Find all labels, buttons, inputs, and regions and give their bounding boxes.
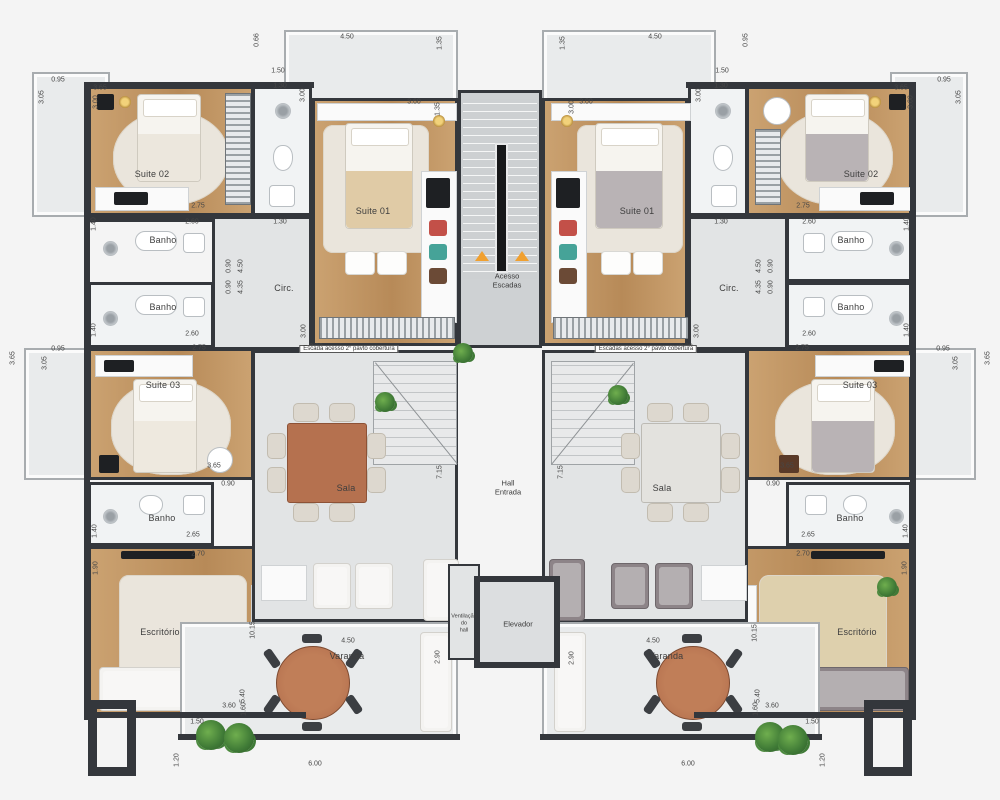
vent-label: Ventilação do hall [451,614,476,635]
room-sala-right [542,350,748,622]
coffee-table [261,565,307,601]
dimension-label: 4.50 [341,638,355,645]
bathroom-a-right [786,216,912,282]
dimension-label: 2.75 [796,203,810,210]
dimension-label: 2.90 [569,651,576,665]
room-label: Banho [837,235,864,245]
monitor-icon [114,192,148,205]
pouf [345,251,375,275]
armchair [611,563,649,609]
stairs-up-arrow-icon [475,251,489,261]
lamp-icon [119,96,131,108]
dimension-label: 3.00 [300,88,307,102]
plant-icon [877,577,897,597]
dimension-label: 0.95 [937,77,951,84]
stair-note-label: Escadas acesso 2° pavto cobertura [595,345,697,353]
dimension-label: 6.00 [681,761,695,768]
room-label: Suite 02 [135,169,170,179]
desk [95,355,193,377]
plant-icon [778,725,808,755]
dimension-label: 4.50 [756,259,763,273]
dimension-label: 1.20 [820,753,827,767]
stair-note-label: Escada acesso 2° pavto cobertura [299,345,398,353]
stairs-access-label: Acesso Escadas [493,272,522,291]
dimension-label: 0.90 [221,481,235,488]
plant-icon [453,343,473,363]
hall-entrada-label: Hall Entrada [495,479,521,498]
dimension-label: 3.60 [407,99,421,106]
dimension-label: 6.00 [308,761,322,768]
dimension-label: 1.40 [903,524,910,538]
dimension-label: 1.35 [437,36,444,50]
room-label: Banho [836,513,863,523]
room-label: Varanda [330,651,365,661]
stool-red [429,220,447,236]
dimension-label: 3.65 [207,463,221,470]
dimension-label: 1.35 [560,36,567,50]
room-label: Escritório [140,627,180,637]
dimension-label: 4.50 [238,259,245,273]
dimension-label: 2.75 [192,345,206,352]
stool-teal [429,244,447,260]
cooktop-icon [426,178,450,208]
room-label: Suite 02 [844,169,879,179]
floor-plan: Acesso Escadas Hall Entrada Ventilação d… [0,0,1000,800]
dimension-label: 3.00 [908,95,915,109]
dimension-label: 0.95 [743,33,750,47]
dimension-label: 1.40 [92,524,99,538]
dimension-label: 1.60 [753,702,760,716]
dimension-label: 7.15 [437,465,444,479]
dimension-label: 1.40 [904,323,911,337]
bathroom-b-left [88,282,214,348]
tv-icon [121,551,195,559]
dimension-label: 3.65 [894,85,908,92]
pillow [143,99,197,117]
wardrobe-icon [225,93,251,205]
room-label: Banho [148,513,175,523]
room-label: Circ. [719,283,739,293]
room-label: Varanda [649,651,684,661]
elevator-label: Elevador [503,619,533,628]
dimension-label: 5.40 [755,689,762,703]
dimension-label: 3.65 [10,351,17,365]
room-suite01-left [312,98,458,346]
dimension-label: 2.90 [435,650,442,664]
dimension-label: 2.65 [186,532,200,539]
dimension-label: 1.30 [273,83,287,90]
dimension-label: 3.65 [985,351,992,365]
stairwell [458,90,542,348]
dimension-label: 3.00 [301,324,308,338]
pouf [377,251,407,275]
dimension-label: 3.60 [765,703,779,710]
dimension-label: 0.90 [768,280,775,294]
room-label: Suite 03 [146,380,181,390]
side-table [763,97,791,125]
dimension-label: 1.30 [273,219,287,226]
varanda-left [180,622,458,740]
dimension-label: 1.20 [174,753,181,767]
stairs-up-arrow-icon [515,251,529,261]
room-label: Sala [337,483,356,493]
kitchen-counter [421,171,457,323]
dimension-label: 2.75 [191,203,205,210]
dimension-label: 1.50 [190,719,204,726]
dimension-label: 3.05 [39,90,46,104]
dimension-label: 3.00 [93,95,100,109]
room-suite02-left [88,86,254,216]
dimension-label: 4.50 [646,638,660,645]
stair-rail [495,143,508,273]
nightstand [97,94,114,110]
dimension-label: 5.40 [240,689,247,703]
varanda-right [542,622,820,740]
wall [694,712,916,718]
balcony-mid-left [24,348,90,480]
dimension-label: 3.00 [696,88,703,102]
dimension-label: 3.60 [222,703,236,710]
wall [84,82,90,720]
room-suite02-right [746,86,912,216]
dimension-label: 2.65 [801,532,815,539]
dimension-label: 4.50 [648,34,662,41]
dimension-label: 10.15 [752,624,759,642]
room-label: Circ. [274,283,294,293]
dimension-label: 2.75 [795,345,809,352]
bathroom-top-left [252,86,312,216]
dimension-label: 1.40 [91,323,98,337]
plant-icon [608,385,628,405]
dimension-label: 3.00 [569,100,576,114]
bathroom-top-right [688,86,748,216]
dimension-label: 3.05 [953,356,960,370]
dimension-label: 4.35 [238,280,245,294]
balcony-mid-right [910,348,976,480]
room-label: Suite 03 [843,380,878,390]
room-label: Sala [653,483,672,493]
dimension-label: 0.95 [936,346,950,353]
room-label: Banho [149,235,176,245]
dimension-label: 7.15 [558,465,565,479]
dimension-label: 3.00 [579,99,593,106]
bench [99,455,119,473]
dimension-label: 10.15 [250,621,257,639]
dimension-label: 2.60 [185,331,199,338]
dimension-label: 1.50 [805,719,819,726]
armchair [655,563,693,609]
armchair [355,563,393,609]
bed-suite03-left [133,379,197,473]
room-suite01-right [542,98,688,346]
bed-suite03-right [811,379,875,473]
wall [84,712,306,718]
dimension-label: 1.60 [241,702,248,716]
dimension-label: 0.90 [226,280,233,294]
toilet-icon [273,145,293,171]
dimension-label: 2.60 [185,219,199,226]
dimension-label: 4.35 [756,280,763,294]
room-suite03-left [88,348,254,480]
dimension-label: 0.66 [254,33,261,47]
dimension-label: 2.60 [802,331,816,338]
lamp-icon [433,115,445,127]
desk [95,187,189,211]
room-label: Banho [149,302,176,312]
plant-icon [224,723,254,753]
dimension-label: 1.40 [904,217,911,231]
dimension-label: 3.65 [93,85,107,92]
dimension-label: 1.30 [714,219,728,226]
room-label: Escritório [837,627,877,637]
dimension-label: 1.90 [93,561,100,575]
dimension-label: 1.40 [91,217,98,231]
room-suite03-right [746,348,912,480]
dimension-label: 1.50 [271,68,285,75]
grill-rack [319,317,455,339]
sink-icon [269,185,295,207]
room-label: Suite 01 [356,206,391,216]
dimension-label: 3.65 [780,463,794,470]
dimension-label: 3.05 [956,90,963,104]
dimension-label: 2.70 [796,551,810,558]
dimension-label: 0.90 [766,481,780,488]
room-label: Suite 01 [620,206,655,216]
tv-icon [811,551,885,559]
stool-brown [429,268,447,284]
room-label: Banho [837,302,864,312]
bathroom-b-right [786,282,912,348]
dimension-label: 1.30 [714,83,728,90]
dimension-label: 1.50 [715,68,729,75]
dimension-label: 4.50 [340,34,354,41]
dimension-label: 2.60 [802,219,816,226]
dimension-label: 0.95 [51,77,65,84]
plant-icon [375,392,395,412]
dimension-label: 1.90 [902,561,909,575]
sink-icon [183,233,205,253]
dimension-label: 2.70 [191,551,205,558]
dimension-label: 1.35 [435,102,442,116]
dimension-label: 3.05 [42,356,49,370]
dimension-label: 3.00 [694,324,701,338]
armchair [313,563,351,609]
dimension-label: 0.95 [51,346,65,353]
dimension-label: 0.90 [226,259,233,273]
shower-icon [275,103,291,119]
dimension-label: 0.90 [768,259,775,273]
wall [910,82,916,720]
